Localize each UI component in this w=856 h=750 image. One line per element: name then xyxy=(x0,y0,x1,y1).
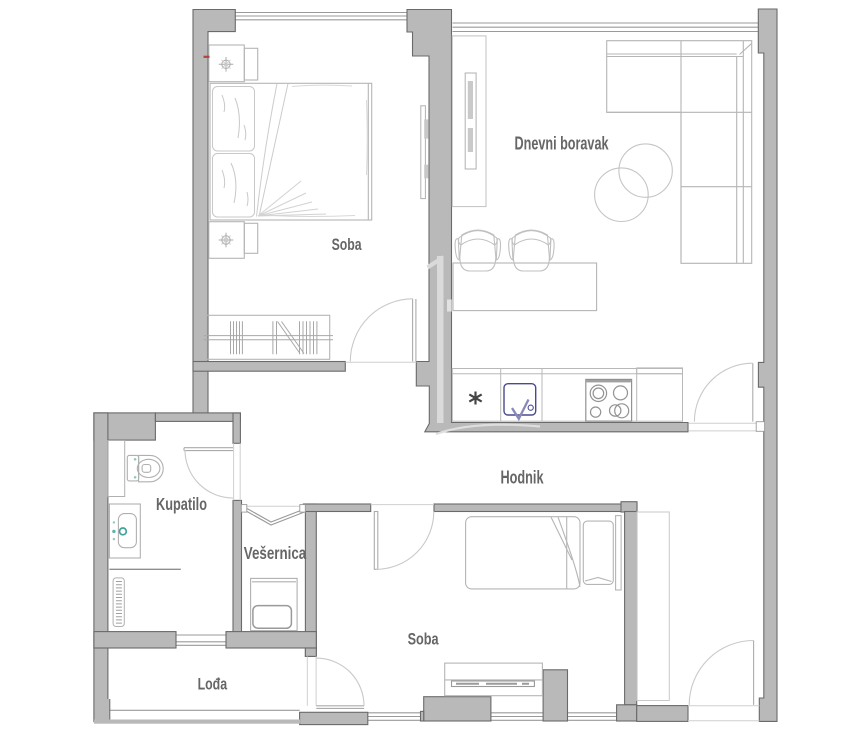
svg-text:Lođa: Lođa xyxy=(198,674,228,693)
svg-text:Soba: Soba xyxy=(408,630,439,649)
svg-text:Kupatilo: Kupatilo xyxy=(156,494,207,514)
svg-text:Dnevni boravak: Dnevni boravak xyxy=(515,133,610,153)
svg-text:Soba: Soba xyxy=(332,235,362,254)
svg-text:Vešernica: Vešernica xyxy=(244,543,307,563)
svg-text:Hodnik: Hodnik xyxy=(501,468,545,488)
